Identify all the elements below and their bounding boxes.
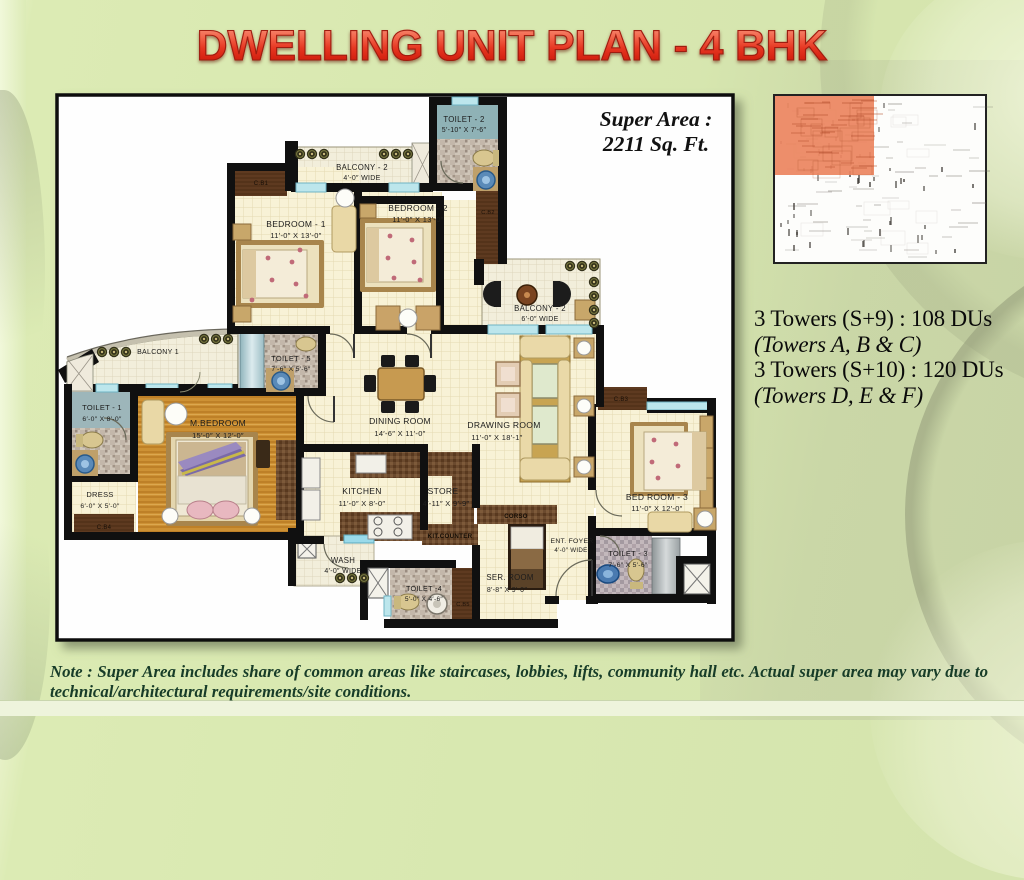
svg-text:TOILET -4: TOILET -4 — [406, 584, 442, 593]
svg-text:4′-0″ WIDE: 4′-0″ WIDE — [324, 568, 361, 575]
svg-text:C.B5: C.B5 — [456, 602, 469, 608]
svg-text:11′-0″ X 13′-0″: 11′-0″ X 13′-0″ — [392, 215, 443, 224]
svg-text:BALCONY - 2: BALCONY - 2 — [514, 304, 566, 313]
svg-text:5′-10″ X 7′-6″: 5′-10″ X 7′-6″ — [442, 127, 487, 134]
svg-text:14′-6″ X 11′-0″: 14′-6″ X 11′-0″ — [374, 429, 425, 438]
svg-text:4′-11″ X 9′-9″: 4′-11″ X 9′-9″ — [423, 499, 470, 508]
svg-text:15′-0″ X 12′-0″: 15′-0″ X 12′-0″ — [192, 431, 244, 440]
svg-text:KIT.COUNTER: KIT.COUNTER — [428, 533, 473, 540]
svg-text:BED ROOM - 3: BED ROOM - 3 — [626, 492, 688, 502]
svg-text:M.BEDROOM: M.BEDROOM — [190, 418, 246, 428]
svg-text:BEDROOM - 1: BEDROOM - 1 — [266, 219, 326, 229]
svg-text:6′-0″ X 8′-0″: 6′-0″ X 8′-0″ — [82, 416, 122, 423]
svg-text:BEDROOM - 2: BEDROOM - 2 — [388, 203, 448, 213]
svg-text:C.B1: C.B1 — [254, 181, 269, 187]
svg-text:5′-0″ X 4′-6″: 5′-0″ X 4′-6″ — [405, 596, 444, 603]
svg-text:KITCHEN: KITCHEN — [342, 486, 381, 496]
svg-text:TOILET - 3: TOILET - 3 — [608, 549, 648, 558]
svg-text:4′-0″ WIDE: 4′-0″ WIDE — [343, 175, 380, 182]
svg-text:STORE: STORE — [428, 486, 459, 496]
svg-text:11′-0″ X 12′-0″: 11′-0″ X 12′-0″ — [631, 504, 682, 513]
svg-text:7′-6″ X 5′-6″: 7′-6″ X 5′-6″ — [608, 562, 648, 569]
svg-text:TOILET - 2: TOILET - 2 — [443, 115, 484, 124]
svg-text:11′-0″ X 18′-1″: 11′-0″ X 18′-1″ — [471, 433, 522, 442]
svg-text:ENT. FOYER: ENT. FOYER — [550, 538, 593, 545]
svg-text:C.B2: C.B2 — [481, 210, 494, 216]
svg-text:C.B3: C.B3 — [614, 397, 629, 403]
svg-text:DRAWING ROOM: DRAWING ROOM — [467, 420, 540, 430]
svg-text:C.B4: C.B4 — [97, 525, 112, 531]
svg-text:WASH: WASH — [331, 556, 355, 565]
svg-text:DRESS: DRESS — [86, 490, 113, 499]
svg-text:DINING ROOM: DINING ROOM — [369, 416, 431, 426]
svg-text:BALCONY - 2: BALCONY - 2 — [336, 163, 388, 172]
svg-text:7′-6″ X 5′-6″: 7′-6″ X 5′-6″ — [271, 366, 311, 373]
svg-text:CORSO: CORSO — [504, 514, 528, 520]
svg-text:6′-0″ WIDE: 6′-0″ WIDE — [521, 316, 558, 323]
svg-text:11′-0″ X 8′-0″: 11′-0″ X 8′-0″ — [339, 499, 386, 508]
svg-text:TOILET - 1: TOILET - 1 — [82, 403, 122, 412]
svg-text:BALCONY 1: BALCONY 1 — [137, 349, 179, 356]
svg-text:TOILET - 5: TOILET - 5 — [271, 354, 311, 363]
svg-text:11′-0″ X 13′-0″: 11′-0″ X 13′-0″ — [270, 231, 321, 240]
svg-text:SER. ROOM: SER. ROOM — [486, 573, 533, 582]
svg-text:4′-0″ WIDE: 4′-0″ WIDE — [554, 547, 587, 554]
svg-text:6′-0″ X 5′-0″: 6′-0″ X 5′-0″ — [80, 503, 120, 510]
svg-text:8′-8″ X 9′-0″: 8′-8″ X 9′-0″ — [487, 587, 527, 594]
